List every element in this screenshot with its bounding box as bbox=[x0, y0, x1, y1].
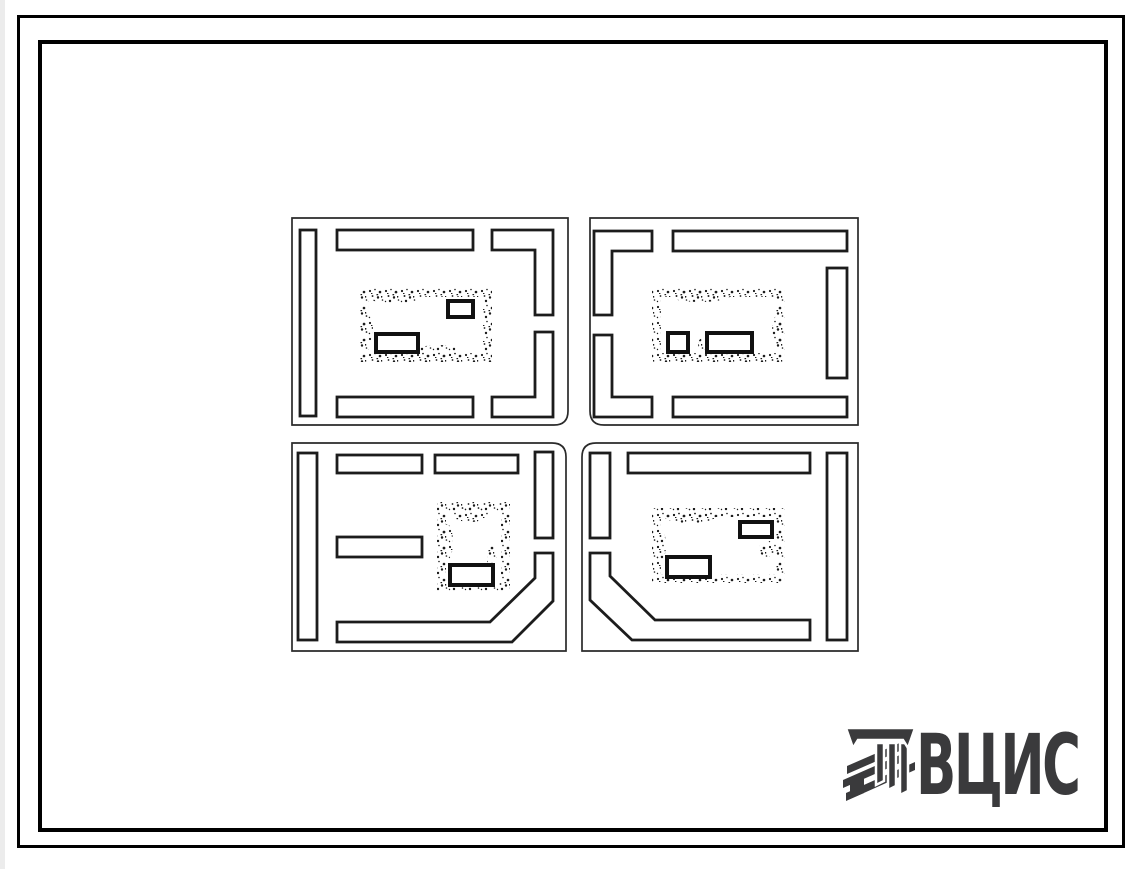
landscaped-courtyard bbox=[441, 506, 506, 588]
building-outline bbox=[594, 335, 652, 417]
project-building bbox=[450, 565, 493, 585]
project-building bbox=[667, 557, 710, 577]
building-outline bbox=[673, 231, 847, 251]
building-outline bbox=[535, 452, 553, 538]
city-block-top-left bbox=[292, 218, 568, 425]
project-building bbox=[376, 334, 418, 352]
building-outline bbox=[827, 453, 847, 640]
city-block-bottom-left bbox=[292, 443, 566, 651]
city-block-top-right bbox=[590, 218, 858, 425]
building-outline bbox=[628, 453, 810, 473]
project-building bbox=[707, 333, 752, 352]
building-outline bbox=[435, 455, 518, 473]
building-outline bbox=[337, 537, 422, 557]
landscaped-courtyard bbox=[363, 292, 488, 358]
building-outline bbox=[492, 332, 553, 417]
building-outline bbox=[492, 230, 553, 315]
building-outline bbox=[590, 453, 610, 538]
scanned-drawing-page: ВЦИС bbox=[0, 0, 1139, 869]
landscaped-courtyard bbox=[657, 290, 785, 358]
vcis-logo-text: ВЦИС bbox=[916, 723, 1078, 807]
building-outline bbox=[673, 397, 847, 417]
building-outline bbox=[594, 231, 652, 315]
building-outline bbox=[337, 397, 473, 417]
building-outline bbox=[298, 453, 317, 640]
project-building bbox=[448, 301, 473, 317]
building-outline bbox=[827, 268, 847, 378]
project-building bbox=[668, 333, 688, 352]
city-block-bottom-right bbox=[582, 443, 858, 651]
project-building bbox=[740, 522, 772, 537]
landscaped-courtyard bbox=[654, 509, 781, 579]
building-outline bbox=[337, 455, 422, 473]
building-outline bbox=[300, 230, 316, 416]
building-outline bbox=[337, 230, 473, 250]
vcis-hatched-column-icon bbox=[830, 712, 930, 804]
vcis-logo: ВЦИС bbox=[830, 712, 1090, 812]
